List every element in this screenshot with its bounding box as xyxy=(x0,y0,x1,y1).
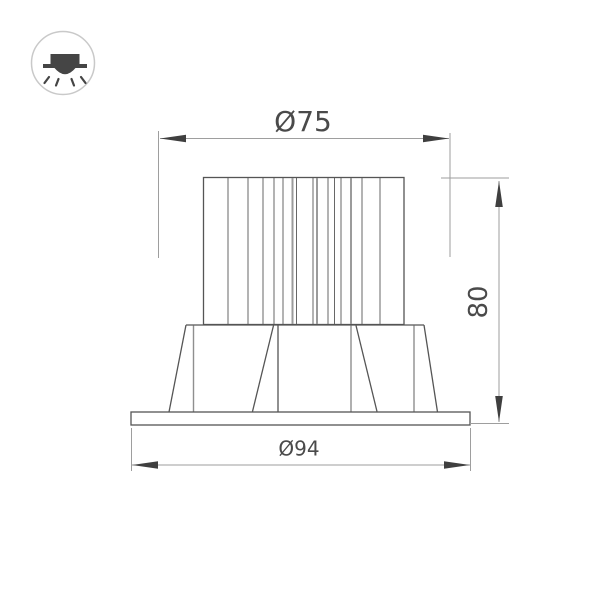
dimension-label-height: 80 xyxy=(464,285,494,318)
heatsink-fin-body xyxy=(204,178,405,325)
heatsink-fins xyxy=(228,178,380,324)
dimension-flange-diameter: Ø94 xyxy=(132,428,471,471)
dimension-top-diameter: Ø75 xyxy=(159,105,451,258)
trim-flange xyxy=(131,412,470,425)
icon-lamp-dome xyxy=(55,68,76,74)
dimension-height: 80 xyxy=(441,178,509,424)
dimension-label-flange-diameter: Ø94 xyxy=(278,437,319,461)
arrow-right-icon xyxy=(423,135,449,143)
icon-light-rays xyxy=(45,77,86,86)
dimension-label-top-diameter: Ø75 xyxy=(274,105,332,138)
arrow-down-icon xyxy=(495,396,503,422)
housing-body xyxy=(169,325,438,412)
icon-ceiling-flange xyxy=(43,64,87,68)
arrow-left-icon xyxy=(132,461,158,469)
icon-lamp-body xyxy=(51,54,80,65)
technical-drawing-page: Ø75 80 Ø94 xyxy=(0,0,600,600)
arrow-left-icon xyxy=(160,135,186,143)
arrow-up-icon xyxy=(495,181,503,207)
technical-drawing: Ø75 80 Ø94 xyxy=(0,0,600,600)
arrow-right-icon xyxy=(444,461,470,469)
housing-detail-lines xyxy=(194,326,415,412)
recessed-downlight-icon xyxy=(32,32,95,95)
